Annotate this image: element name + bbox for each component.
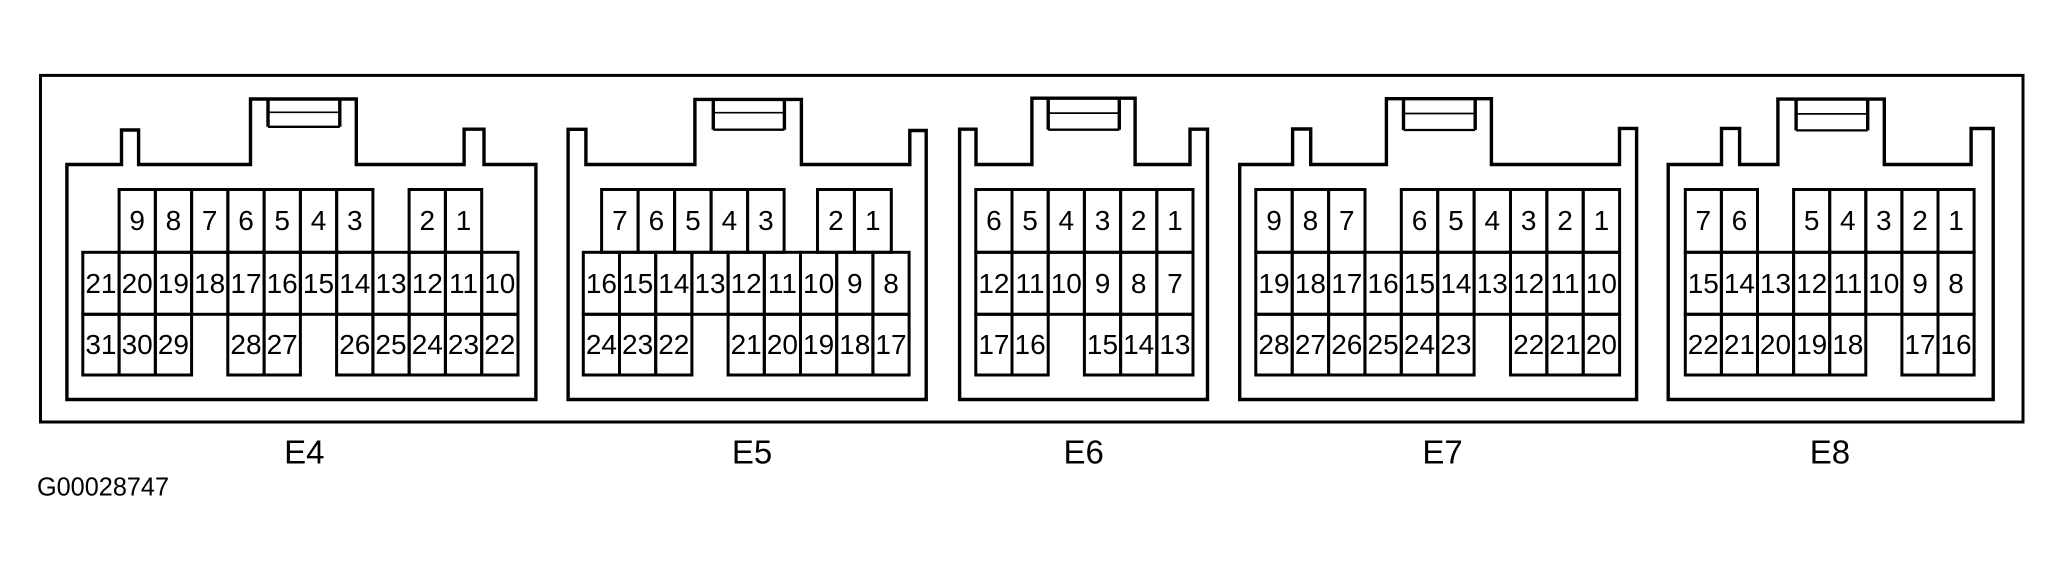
svg-text:7: 7: [1167, 268, 1183, 299]
svg-text:10: 10: [1586, 268, 1617, 299]
svg-text:6: 6: [1412, 205, 1428, 236]
svg-text:G00028747: G00028747: [37, 472, 169, 502]
svg-text:15: 15: [1087, 329, 1118, 360]
svg-text:8: 8: [1948, 268, 1964, 299]
svg-text:13: 13: [1760, 268, 1791, 299]
svg-text:17: 17: [1331, 268, 1362, 299]
svg-text:13: 13: [1159, 329, 1190, 360]
svg-text:20: 20: [1586, 329, 1617, 360]
svg-text:18: 18: [1832, 329, 1863, 360]
svg-text:20: 20: [122, 268, 153, 299]
svg-text:8: 8: [1131, 268, 1147, 299]
svg-text:21: 21: [731, 329, 762, 360]
svg-text:5: 5: [1022, 205, 1038, 236]
svg-text:12: 12: [978, 268, 1009, 299]
svg-text:11: 11: [768, 268, 797, 299]
svg-text:13: 13: [694, 268, 725, 299]
svg-text:1: 1: [1167, 205, 1183, 236]
svg-text:5: 5: [685, 205, 701, 236]
svg-text:21: 21: [1549, 329, 1580, 360]
svg-text:1: 1: [1948, 205, 1964, 236]
svg-text:3: 3: [1876, 205, 1892, 236]
svg-text:8: 8: [1303, 205, 1319, 236]
svg-text:23: 23: [622, 329, 653, 360]
svg-text:4: 4: [1485, 205, 1501, 236]
svg-text:17: 17: [875, 329, 906, 360]
svg-text:28: 28: [230, 329, 261, 360]
svg-text:13: 13: [375, 268, 406, 299]
svg-text:5: 5: [1804, 205, 1820, 236]
svg-text:16: 16: [267, 268, 298, 299]
svg-text:4: 4: [1059, 205, 1075, 236]
svg-text:3: 3: [347, 205, 363, 236]
svg-text:18: 18: [1295, 268, 1326, 299]
svg-text:30: 30: [122, 329, 153, 360]
svg-text:20: 20: [1760, 329, 1791, 360]
svg-text:26: 26: [339, 329, 370, 360]
svg-text:E5: E5: [732, 434, 772, 471]
svg-text:16: 16: [1940, 329, 1971, 360]
svg-text:21: 21: [85, 268, 116, 299]
svg-text:7: 7: [1339, 205, 1355, 236]
svg-text:12: 12: [1796, 268, 1827, 299]
svg-text:23: 23: [448, 329, 479, 360]
svg-text:10: 10: [484, 268, 515, 299]
svg-text:2: 2: [1912, 205, 1928, 236]
svg-text:16: 16: [1368, 268, 1399, 299]
svg-text:19: 19: [1258, 268, 1289, 299]
svg-text:9: 9: [129, 205, 145, 236]
svg-text:11: 11: [1016, 268, 1045, 299]
svg-text:10: 10: [1051, 268, 1082, 299]
svg-text:22: 22: [1688, 329, 1719, 360]
svg-text:4: 4: [311, 205, 327, 236]
svg-text:6: 6: [986, 205, 1002, 236]
svg-text:17: 17: [978, 329, 1009, 360]
svg-text:15: 15: [1404, 268, 1435, 299]
svg-text:13: 13: [1477, 268, 1508, 299]
svg-text:7: 7: [1696, 205, 1712, 236]
svg-text:22: 22: [1513, 329, 1544, 360]
svg-text:23: 23: [1440, 329, 1471, 360]
svg-text:7: 7: [202, 205, 218, 236]
svg-text:19: 19: [158, 268, 189, 299]
svg-text:19: 19: [1796, 329, 1827, 360]
svg-text:12: 12: [412, 268, 443, 299]
svg-text:15: 15: [622, 268, 653, 299]
svg-text:18: 18: [839, 329, 870, 360]
svg-text:5: 5: [274, 205, 290, 236]
svg-text:26: 26: [1331, 329, 1362, 360]
svg-text:14: 14: [1724, 268, 1755, 299]
svg-text:E8: E8: [1810, 434, 1850, 471]
svg-text:16: 16: [1015, 329, 1046, 360]
svg-text:21: 21: [1724, 329, 1755, 360]
svg-text:14: 14: [658, 268, 689, 299]
svg-text:29: 29: [158, 329, 189, 360]
svg-text:19: 19: [803, 329, 834, 360]
svg-text:14: 14: [339, 268, 370, 299]
svg-text:6: 6: [649, 205, 665, 236]
svg-text:31: 31: [85, 329, 116, 360]
svg-text:10: 10: [1868, 268, 1899, 299]
svg-text:10: 10: [803, 268, 834, 299]
svg-text:E7: E7: [1422, 434, 1462, 471]
svg-text:9: 9: [847, 268, 863, 299]
svg-text:6: 6: [1732, 205, 1748, 236]
svg-text:20: 20: [767, 329, 798, 360]
svg-text:3: 3: [1521, 205, 1537, 236]
svg-text:15: 15: [303, 268, 334, 299]
svg-text:9: 9: [1095, 268, 1111, 299]
svg-text:2: 2: [1131, 205, 1147, 236]
svg-text:1: 1: [456, 205, 472, 236]
svg-text:27: 27: [1295, 329, 1326, 360]
svg-text:2: 2: [420, 205, 436, 236]
svg-text:11: 11: [1550, 268, 1579, 299]
svg-text:1: 1: [865, 205, 881, 236]
svg-text:1: 1: [1594, 205, 1610, 236]
svg-text:4: 4: [722, 205, 738, 236]
svg-text:24: 24: [1404, 329, 1435, 360]
svg-text:5: 5: [1448, 205, 1464, 236]
svg-text:6: 6: [238, 205, 254, 236]
svg-text:24: 24: [412, 329, 443, 360]
svg-text:22: 22: [658, 329, 689, 360]
svg-text:E4: E4: [284, 434, 324, 471]
svg-text:11: 11: [449, 268, 478, 299]
svg-text:3: 3: [758, 205, 774, 236]
svg-text:9: 9: [1912, 268, 1928, 299]
svg-text:17: 17: [1904, 329, 1935, 360]
svg-text:4: 4: [1840, 205, 1856, 236]
svg-text:8: 8: [166, 205, 182, 236]
svg-text:18: 18: [194, 268, 225, 299]
svg-text:8: 8: [883, 268, 899, 299]
svg-text:12: 12: [1513, 268, 1544, 299]
svg-text:2: 2: [828, 205, 844, 236]
svg-text:2: 2: [1557, 205, 1573, 236]
svg-text:16: 16: [586, 268, 617, 299]
svg-text:12: 12: [731, 268, 762, 299]
svg-text:24: 24: [586, 329, 617, 360]
svg-text:25: 25: [1368, 329, 1399, 360]
svg-text:15: 15: [1688, 268, 1719, 299]
svg-text:14: 14: [1123, 329, 1154, 360]
svg-text:7: 7: [612, 205, 628, 236]
svg-text:27: 27: [267, 329, 298, 360]
svg-text:25: 25: [375, 329, 406, 360]
svg-text:14: 14: [1440, 268, 1471, 299]
svg-text:28: 28: [1258, 329, 1289, 360]
svg-text:3: 3: [1095, 205, 1111, 236]
svg-text:11: 11: [1833, 268, 1862, 299]
svg-text:E6: E6: [1064, 434, 1104, 471]
svg-text:9: 9: [1266, 205, 1282, 236]
svg-text:17: 17: [230, 268, 261, 299]
svg-text:22: 22: [484, 329, 515, 360]
